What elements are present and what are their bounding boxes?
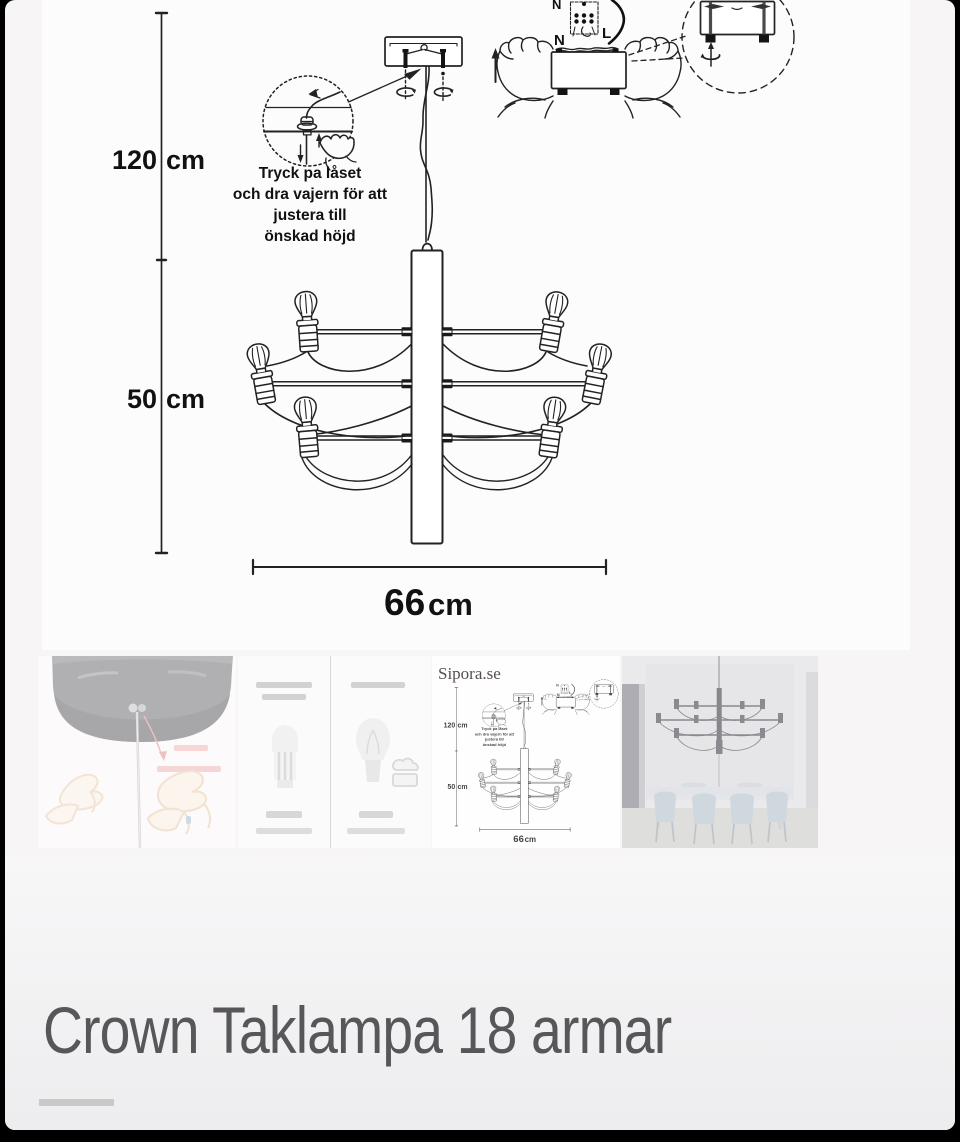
svg-text:önskad höjd: önskad höjd (264, 228, 355, 245)
svg-text:cm: cm (166, 384, 205, 414)
svg-text:och dra vajern för att: och dra vajern för att (233, 186, 387, 203)
svg-text:cm: cm (166, 145, 205, 175)
svg-text:Tryck pa låset: Tryck pa låset (259, 165, 362, 182)
svg-text:L: L (602, 25, 611, 42)
svg-text:66: 66 (384, 582, 425, 623)
svg-text:justera till: justera till (272, 207, 346, 224)
svg-text:N: N (552, 0, 561, 12)
svg-text:50: 50 (127, 384, 157, 414)
svg-text:cm: cm (428, 587, 473, 622)
svg-text:N: N (554, 32, 565, 49)
svg-text:120: 120 (112, 145, 157, 175)
